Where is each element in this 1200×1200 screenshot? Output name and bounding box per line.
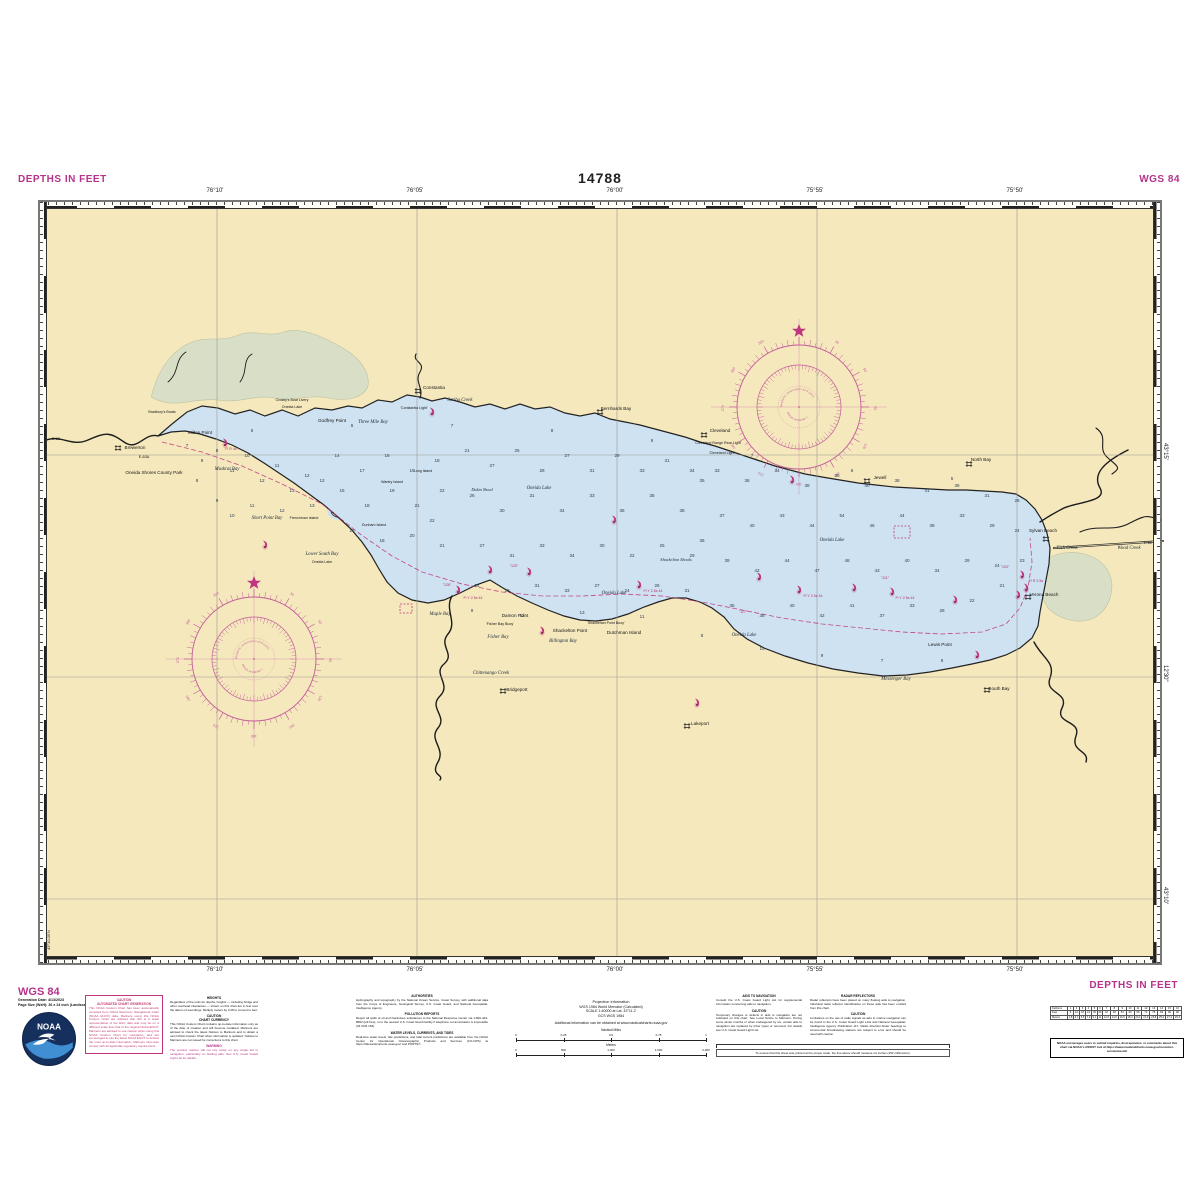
depth-sounding: 41 — [849, 603, 855, 608]
place-label: 'Cleveland Range Rear Light' — [695, 441, 742, 445]
depth-sounding: 38 — [759, 613, 765, 618]
depth-sounding: 21 — [439, 543, 445, 548]
depth-sounding: 26 — [1014, 498, 1020, 503]
place-label: Bradbury's Boats — [148, 410, 175, 414]
place-label: E-62 — [52, 437, 60, 441]
place-label: 'Constantia Light' — [400, 406, 428, 410]
compass-rose: 306090120150180210240270300330MAGNETIC V… — [166, 571, 342, 747]
chittenango-creek — [435, 596, 452, 780]
town-symbol — [115, 445, 121, 451]
conversion-table: Fathoms12345678910111213141516Feet612182… — [1050, 1006, 1182, 1020]
svg-text:MAGNETIC VARIATION 11°45'W (20: MAGNETIC VARIATION 11°45'W (2023) — [235, 640, 270, 659]
depth-sounding: 21 — [414, 503, 420, 508]
place-label: Lakeport — [691, 721, 710, 726]
light-symbol — [261, 540, 268, 550]
caution-body: This NOAA Custom Chart has been automati… — [89, 1007, 159, 1049]
place-label: South Bay — [988, 686, 1010, 691]
place-label: 'Fisher Bay Buoy' — [486, 622, 514, 626]
authorities-block: AUTHORITIES Hydrography and topography b… — [356, 994, 488, 1049]
place-label: Fl Y 2.5s 44 — [895, 596, 914, 600]
depth-sounding: 6 — [851, 468, 854, 473]
longitude-label: 76°05' — [407, 188, 424, 194]
latitude-label: 43°10' — [1162, 887, 1168, 904]
place-label: Brewerton — [125, 445, 146, 450]
six-inch-scale: To ensure that this sheet was printed at… — [716, 1044, 950, 1057]
place-label: Dunham Island — [362, 523, 386, 527]
heights-block: HEIGHTS Regardless of the units for dept… — [170, 996, 258, 1063]
place-label: Fish Creek — [1055, 546, 1078, 551]
depth-sounding: 5 — [251, 428, 254, 433]
place-label: Lewis Point — [928, 642, 952, 647]
latitude-label: 12'30" — [1162, 665, 1168, 682]
depth-sounding: 19 — [389, 488, 395, 493]
depth-sounding: 22 — [439, 488, 445, 493]
depth-sounding: 8 — [216, 448, 219, 453]
marsh-northwest — [152, 330, 369, 403]
depth-sounding: 12 — [279, 508, 285, 513]
svg-text:120: 120 — [317, 695, 323, 702]
depth-sounding: 8 — [196, 478, 199, 483]
town-symbol — [966, 461, 972, 467]
depth-sounding: 33 — [564, 588, 570, 593]
place-label: "126" — [443, 583, 452, 587]
depth-sounding: 26 — [654, 583, 660, 588]
place-label: Muskrat Bay — [214, 467, 241, 472]
noaa-logo-text: NOAA — [37, 1022, 61, 1031]
depth-sounding: 28 — [504, 588, 510, 593]
depth-sounding: 18 — [379, 538, 385, 543]
svg-text:150: 150 — [288, 723, 295, 729]
caution-automated-box: CAUTION AUTOMATED CHART GENERATION This … — [85, 995, 163, 1054]
svg-text:90: 90 — [873, 406, 877, 410]
place-label: Sylvan Beach — [1029, 528, 1058, 533]
depth-sounding: 22 — [969, 598, 975, 603]
town-symbol — [984, 687, 990, 693]
depth-sounding: 11 — [640, 614, 645, 619]
depth-sounding: 42 — [819, 613, 825, 618]
svg-text:300: 300 — [730, 367, 736, 374]
depth-sounding: 30 — [499, 508, 505, 513]
svg-text:30: 30 — [834, 340, 839, 345]
wgs84-top-label: WGS 84 — [1139, 174, 1180, 185]
depth-sounding: 33 — [959, 513, 965, 518]
depth-sounding: 18 — [434, 458, 440, 463]
depth-sounding: 41 — [924, 488, 930, 493]
town-symbol — [415, 388, 421, 394]
depth-sounding: 9 — [651, 438, 654, 443]
projection-gcs: GCS WGS 1984 — [516, 1014, 706, 1019]
place-label: Fl R 4s — [225, 447, 237, 451]
depth-sounding: 25 — [659, 543, 665, 548]
chart-number: 14788 — [0, 170, 1200, 186]
depth-sounding: 33 — [539, 543, 545, 548]
depth-sounding: 16 — [384, 453, 390, 458]
depth-sounding: 35 — [699, 478, 705, 483]
aids-caution-title: CAUTION — [716, 1009, 802, 1013]
svg-text:60: 60 — [317, 620, 322, 625]
depth-sounding: 39 — [724, 558, 730, 563]
depth-sounding: 6 — [351, 423, 354, 428]
depth-sounding: 31 — [684, 588, 690, 593]
assist-text: NOAA encourages users to submit inquirie… — [1054, 1042, 1180, 1053]
marsh-verona-beach — [1040, 552, 1112, 621]
shoreline — [158, 395, 1050, 676]
depth-sounding: 21 — [999, 583, 1005, 588]
svg-text:330: 330 — [757, 339, 764, 345]
depth-sounding: 34 — [559, 508, 565, 513]
depth-sounding: 44 — [899, 513, 905, 518]
border-ruler-left — [40, 202, 47, 963]
depth-sounding: 44 — [809, 523, 815, 528]
depth-sounding: 23 — [1019, 558, 1025, 563]
place-label: Oneida Lake — [527, 486, 553, 491]
anchorage-box — [400, 604, 412, 613]
depth-sounding: 27 — [564, 453, 570, 458]
depth-sounding: 28 — [539, 468, 545, 473]
svg-text:240: 240 — [185, 695, 191, 702]
longitude-label: 75°55' — [807, 967, 824, 973]
depth-sounding: 27 — [594, 583, 600, 588]
radar-body: Radar reflectors have been placed on man… — [810, 999, 906, 1010]
longitude-label: 76°00' — [607, 967, 624, 973]
heights-body: Regardless of the units for depths, heig… — [170, 1001, 258, 1012]
place-label: Wood Creek — [1117, 546, 1141, 551]
depth-sounding: 33 — [909, 603, 915, 608]
depth-sounding: 27 — [489, 463, 495, 468]
place-label: Oneida Lake — [282, 405, 302, 409]
place-label: Godfrey Point — [318, 418, 347, 423]
depth-sounding: 44 — [784, 558, 790, 563]
depth-sounding: 31 — [589, 468, 595, 473]
chart-page: DEPTHS IN FEET 14788 WGS 84 — [0, 0, 1200, 1200]
place-label: Shackelton Shoals — [660, 557, 692, 562]
depth-sounding: 9 — [216, 498, 219, 503]
svg-text:270: 270 — [176, 657, 180, 663]
wood-creek — [1080, 517, 1160, 532]
svg-text:180: 180 — [251, 734, 257, 738]
depth-sounding: 12 — [304, 473, 310, 478]
depth-sounding: 24 — [474, 583, 480, 588]
depth-sounding: 31 — [529, 493, 535, 498]
depth-sounding: 35 — [649, 493, 655, 498]
depth-sounding: 7 — [881, 658, 884, 663]
caution-currency-body: This NOAA Custom Chart contains up-to-da… — [170, 1023, 258, 1042]
depth-sounding: 13 — [579, 610, 585, 615]
svg-text:270: 270 — [721, 405, 725, 411]
depth-sounding: 31 — [664, 458, 670, 463]
depth-sounding: 10 — [759, 646, 765, 651]
depth-sounding: 29 — [614, 453, 620, 458]
depth-sounding: 48 — [844, 558, 850, 563]
warning-body: The prudent mariner will not rely solely… — [170, 1049, 258, 1060]
noaa-logo: NOAA — [22, 1012, 76, 1066]
place-label: Milton Point — [188, 430, 213, 435]
depth-sounding: 34 — [689, 468, 695, 473]
radar-caution-body: Limitations on the use of radio signals … — [810, 1017, 906, 1036]
place-label: Constantia — [423, 385, 445, 390]
depth-sounding: 31 — [509, 553, 515, 558]
place-label: Bernhards Bay — [601, 406, 632, 411]
svg-text:210: 210 — [212, 723, 219, 729]
fish-creek — [1040, 450, 1128, 522]
town-symbol — [684, 723, 690, 729]
depth-sounding: 40 — [749, 523, 755, 528]
depth-sounding: 29 — [989, 523, 995, 528]
place-label: Oneida Shores County Park — [125, 470, 183, 475]
depths-in-feet-bottom-label: DEPTHS IN FEET — [1089, 980, 1178, 991]
depth-sounding: 7 — [751, 453, 754, 458]
depth-sounding: 54 — [839, 513, 845, 518]
six-inch-text: To ensure that this sheet was printed at… — [716, 1049, 950, 1057]
place-label: Wantry Island — [381, 480, 403, 484]
light-symbol — [693, 698, 700, 708]
place-label: 'Shackelton Point Buoy' — [587, 621, 625, 625]
svg-text:30: 30 — [289, 592, 294, 597]
depth-sounding: 24 — [994, 563, 1000, 568]
longitude-label: 76°10' — [207, 188, 224, 194]
svg-text:300: 300 — [185, 619, 191, 626]
depth-sounding: 7 — [451, 423, 454, 428]
depth-sounding: 36 — [619, 508, 625, 513]
longitude-label: 75°50' — [1007, 188, 1024, 194]
depth-sounding: 9 — [201, 458, 204, 463]
longitude-label: 76°05' — [407, 967, 424, 973]
depth-sounding: 43 — [779, 513, 785, 518]
depth-sounding: 25 — [514, 448, 520, 453]
place-label: Chittenango Creek — [473, 671, 510, 676]
place-label: Scriba Creek — [448, 398, 474, 403]
place-label: 'Cleveland Light' — [709, 451, 735, 455]
depth-sounding: 36 — [699, 538, 705, 543]
place-label: Maple Bay — [429, 612, 452, 617]
svg-text:120: 120 — [862, 443, 868, 450]
depth-sounding: 11 — [275, 463, 280, 468]
place-label: Billington Bay — [549, 639, 578, 644]
depth-sounding: 31 — [984, 493, 990, 498]
southeast-river — [1034, 642, 1087, 762]
depth-sounding: 9 — [471, 608, 474, 613]
place-label: Fl Y 2.5s 44 — [463, 596, 482, 600]
place-label: Damon Point — [502, 613, 529, 618]
place-label: Three Mile Bay — [358, 420, 389, 425]
scale-bar-nm-caption: Nautical Miles — [516, 1028, 706, 1033]
depth-sounding: 8 — [551, 428, 554, 433]
depth-sounding: 13 — [309, 503, 315, 508]
place-label: Oneida Lake — [602, 591, 628, 596]
projection-block: Projection Information WGS 1984 World Me… — [516, 1000, 706, 1060]
depth-sounding: 40 — [904, 558, 910, 563]
depth-sounding: 43 — [874, 568, 880, 573]
place-label: Fl Y 2.5s 44 — [803, 594, 822, 598]
longitude-label: 75°50' — [1007, 967, 1024, 973]
depth-sounding: 26 — [469, 493, 475, 498]
place-label: Frenchman Island — [290, 516, 319, 520]
depth-sounding: 28 — [939, 608, 945, 613]
svg-text:ANNUAL DECREASE 1': ANNUAL DECREASE 1' — [786, 411, 809, 422]
place-label: Long Island — [414, 469, 433, 473]
aids-caution-body: Temporary changes or defects in aids to … — [716, 1014, 802, 1033]
depth-sounding: 18 — [364, 503, 370, 508]
depth-sounding: 38 — [929, 523, 935, 528]
depth-sounding: 33 — [589, 493, 595, 498]
svg-text:ANNUAL DECREASE 1': ANNUAL DECREASE 1' — [241, 663, 264, 674]
depth-sounding: 10 — [229, 513, 235, 518]
depth-sounding: 42 — [754, 568, 760, 573]
nautical-chart-area[interactable]: 306090120150180210240270300330MAGNETIC V… — [38, 200, 1162, 965]
depth-sounding: 35 — [729, 603, 735, 608]
depth-sounding: 34 — [569, 553, 575, 558]
depth-sounding: 6 — [941, 658, 944, 663]
depth-sounding: 17 — [359, 468, 365, 473]
depth-sounding: 8 — [701, 633, 704, 638]
depth-sounding: 34 — [774, 468, 780, 473]
depth-sounding: 12 — [259, 478, 265, 483]
place-label: "117" — [739, 610, 748, 614]
depth-sounding: 7 — [186, 443, 189, 448]
assist-box: NOAA encourages users to submit inquirie… — [1050, 1038, 1184, 1058]
depth-sounding: 40 — [789, 603, 795, 608]
depth-sounding: 5 — [951, 476, 954, 481]
place-label: Shackelton Point — [553, 628, 588, 633]
place-label: Jewell — [874, 475, 887, 480]
depth-sounding: 22 — [629, 553, 635, 558]
depth-sounding: 33 — [714, 468, 720, 473]
depth-sounding: 31 — [534, 583, 540, 588]
place-label: Oneida Lake — [312, 560, 332, 564]
svg-text:60: 60 — [862, 368, 867, 373]
depth-sounding: 20 — [409, 533, 415, 538]
nautical-chart-map[interactable]: 306090120150180210240270300330MAGNETIC V… — [40, 202, 1164, 967]
place-label: Bridgeport — [506, 687, 528, 692]
depth-sounding: 24 — [1014, 528, 1020, 533]
depth-sounding: 38 — [679, 508, 685, 513]
place-label: North Bay — [971, 457, 992, 462]
depth-sounding: 11 — [250, 503, 255, 508]
aids-body: Consult the U.S. Coast Guard Light List … — [716, 999, 802, 1007]
svg-text:180: 180 — [796, 482, 802, 486]
place-label: Dakin Shoal — [470, 487, 493, 492]
fish-creek-branch — [1096, 428, 1118, 474]
scale-bar-m-caption: Meters — [516, 1043, 706, 1048]
depth-sounding: 16 — [349, 528, 355, 533]
depth-sounding: 37 — [879, 613, 885, 618]
depth-sounding: 9 — [821, 653, 824, 658]
border-ruler-top — [40, 202, 1160, 209]
depth-sounding: 14 — [334, 453, 340, 458]
depth-sounding: 36 — [834, 473, 840, 478]
border-ruler-right — [1153, 202, 1160, 963]
depth-sounding: 29 — [964, 558, 970, 563]
latitude-label: 43°15' — [1162, 443, 1168, 460]
longitude-label: 76°10' — [207, 967, 224, 973]
scale-bar-meters: Meters 05001,0001,5002,000 — [516, 1047, 706, 1060]
projection-info: Additional information can be obtained a… — [516, 1021, 706, 1026]
longitude-label: 75°55' — [807, 188, 824, 194]
town-symbol — [500, 688, 506, 694]
place-label: "111" — [881, 576, 890, 580]
place-label: Verona Beach — [1030, 592, 1059, 597]
aids-block: AIDS TO NAVIGATION Consult the U.S. Coas… — [716, 994, 802, 1035]
depth-sounding: 47 — [814, 568, 820, 573]
place-label: Oneida Lake — [732, 633, 758, 638]
svg-text:90: 90 — [328, 658, 332, 662]
place-label: Lower South Bay — [304, 552, 339, 557]
town-symbol — [701, 432, 707, 438]
place-label: Fisher Bay — [486, 635, 509, 640]
depth-sounding: 33 — [639, 468, 645, 473]
pollution-body: Report all spills of oil and hazardous s… — [356, 1017, 488, 1028]
longitude-label: 76°00' — [607, 188, 624, 194]
radar-block: RADAR REFLECTORS Radar reflectors have b… — [810, 994, 906, 1038]
depth-sounding: 46 — [869, 523, 875, 528]
depth-sounding: 21 — [464, 448, 470, 453]
place-label: Crosby's Boat Livery — [276, 398, 309, 402]
authorities-body: Hydrography and topography by the Nation… — [356, 999, 488, 1010]
border-ruler-bottom — [40, 956, 1160, 963]
depth-sounding: 36 — [744, 478, 750, 483]
water-levels-body: Real-time water levels, tide predictions… — [356, 1036, 488, 1047]
place-label: "103" — [1001, 565, 1010, 569]
place-label: Oneida Lake — [820, 538, 846, 543]
depth-sounding: 13 — [289, 488, 295, 493]
depth-sounding: 27 — [479, 543, 485, 548]
light-symbol — [538, 626, 545, 636]
place-label: E-62 — [1144, 541, 1152, 545]
depth-sounding: 10 — [244, 453, 250, 458]
depth-sounding: 30 — [599, 543, 605, 548]
place-label: E-63A — [139, 455, 150, 459]
depth-sounding: 37 — [719, 513, 725, 518]
depth-sounding: 22 — [429, 518, 435, 523]
depth-sounding: 34 — [934, 568, 940, 573]
place-label: Messenger Bay — [880, 677, 911, 682]
depth-sounding: 38 — [894, 478, 900, 483]
depth-sounding: 38 — [804, 483, 810, 488]
place-label: "120" — [510, 564, 519, 568]
depth-sounding: 36 — [954, 483, 960, 488]
place-label: Cleveland — [710, 428, 731, 433]
depth-sounding: 12 — [319, 478, 325, 483]
place-label: Fl R 2.5s — [1029, 579, 1044, 583]
svg-text:330: 330 — [212, 591, 219, 597]
place-label: Fl Y 2.5s 44 — [643, 589, 662, 593]
svg-text:MAGNETIC VARIATION 11°45'W (20: MAGNETIC VARIATION 11°45'W (2023) — [780, 388, 815, 407]
depth-sounding: 15 — [339, 488, 345, 493]
place-label: Dutchman Island — [607, 630, 642, 635]
place-label: Short Point Bay — [252, 516, 284, 521]
